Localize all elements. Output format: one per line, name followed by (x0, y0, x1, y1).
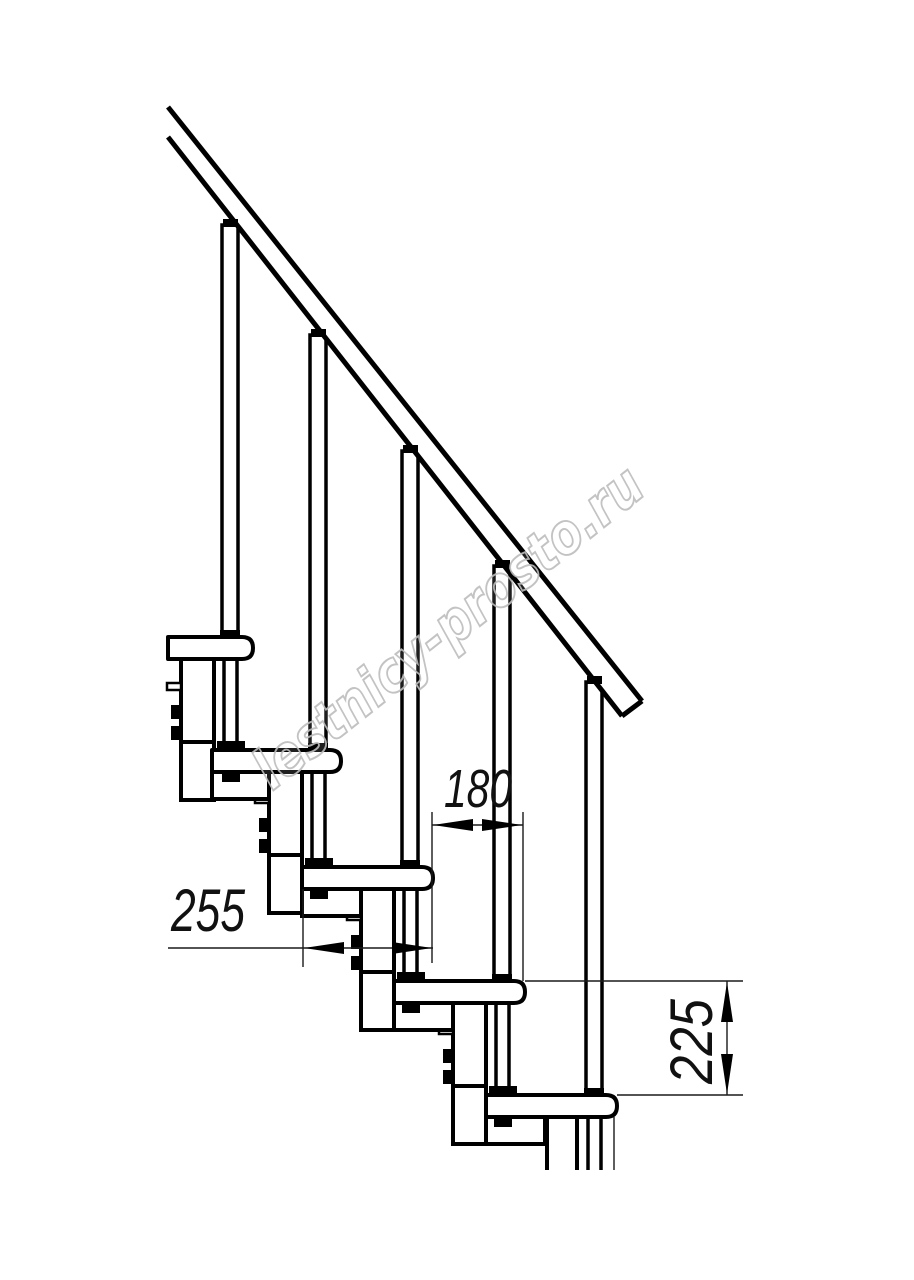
baluster-rail-mount (311, 329, 326, 337)
baluster-base-mount (400, 860, 420, 867)
rod-2 (312, 772, 325, 867)
tread-3 (302, 867, 433, 889)
dim-label-180: 180 (444, 759, 512, 819)
baluster-5 (586, 682, 602, 1095)
rod-3 (404, 889, 417, 981)
baluster-1 (222, 225, 238, 637)
clamp-bolt (445, 1051, 453, 1061)
rod-4 (496, 1003, 509, 1095)
support-column-5 (547, 1117, 577, 1170)
rod-5 (588, 1117, 601, 1170)
rod-nut (402, 1003, 420, 1013)
baluster-base-mount (584, 1088, 604, 1095)
staircase-technical-drawing: 255 180 225 lestnicy-prosto.ru (0, 0, 914, 1280)
baluster-rail-mount (587, 676, 602, 684)
clamp-bolt (353, 937, 361, 947)
clamp-bolt (173, 728, 181, 738)
clamp-bolt (261, 820, 269, 830)
support-column-1 (167, 659, 214, 800)
rod-nut (494, 1117, 512, 1127)
staircase-drawing-page: 255 180 225 lestnicy-prosto.ru (0, 0, 914, 1280)
tread-4 (394, 981, 525, 1003)
rod-1 (224, 659, 237, 750)
tread-1 (168, 637, 253, 659)
rod-nut (310, 889, 328, 899)
baluster-rail-mount (223, 219, 238, 227)
rod-nut (222, 772, 240, 782)
arrow-left (304, 942, 344, 954)
dim-label-225: 225 (658, 998, 725, 1084)
tread-5 (486, 1095, 617, 1117)
clamp-bolt (353, 958, 361, 968)
clamp-bolt (261, 841, 269, 851)
clamp-bolt (445, 1072, 453, 1082)
baluster-rail-mount (403, 445, 418, 453)
clamp-bolt (173, 707, 181, 717)
dim-label-255: 255 (170, 877, 245, 944)
arrow-left (433, 819, 473, 831)
baluster-base-mount (492, 974, 512, 981)
baluster-base-mount (220, 630, 240, 637)
